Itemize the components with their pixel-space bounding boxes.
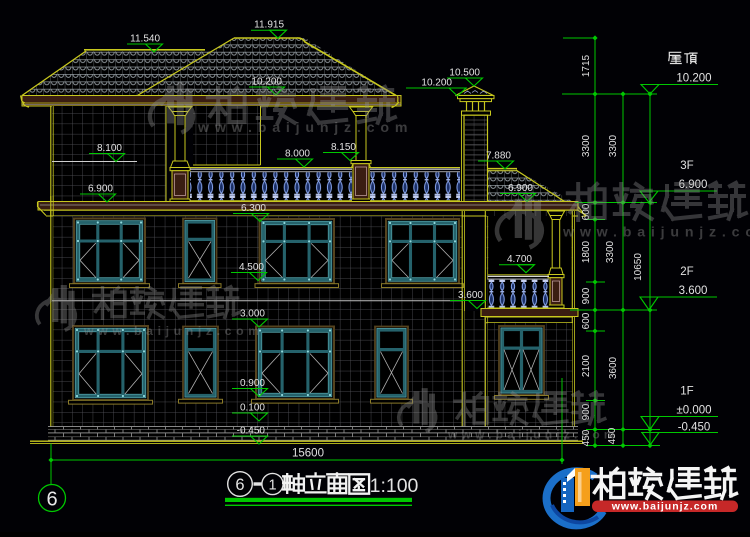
svg-text:www.baijunjz.com: www.baijunjz.com (197, 120, 413, 136)
svg-text:8.000: 8.000 (285, 149, 310, 160)
svg-text:15600: 15600 (292, 448, 324, 460)
svg-text:2F: 2F (680, 266, 693, 278)
svg-text:4.700: 4.700 (507, 254, 532, 265)
svg-text:0.900: 0.900 (240, 378, 265, 389)
svg-text:www.baijunjz.com: www.baijunjz.com (562, 225, 750, 241)
svg-text:7.880: 7.880 (486, 151, 511, 162)
svg-text:±0.000: ±0.000 (676, 405, 711, 417)
svg-text:1: 1 (268, 477, 276, 493)
svg-text:11.540: 11.540 (130, 34, 160, 45)
svg-text:www.baijunjz.com: www.baijunjz.com (611, 501, 719, 513)
svg-text:10650: 10650 (633, 253, 644, 281)
svg-text:1:100: 1:100 (370, 475, 419, 497)
svg-text:11.915: 11.915 (254, 20, 284, 31)
svg-text:-0.450: -0.450 (678, 422, 711, 434)
svg-text:1715: 1715 (581, 54, 592, 77)
svg-text:10.200: 10.200 (251, 77, 282, 88)
svg-text:6.300: 6.300 (241, 203, 266, 214)
svg-text:3F: 3F (680, 160, 693, 172)
svg-text:6.900: 6.900 (508, 183, 533, 194)
svg-text:4.500: 4.500 (239, 262, 264, 273)
svg-text:10.500: 10.500 (449, 68, 480, 79)
svg-text:3.600: 3.600 (458, 290, 483, 301)
svg-text:3.600: 3.600 (679, 285, 708, 297)
svg-text:8.150: 8.150 (331, 142, 356, 153)
svg-text:-0.450: -0.450 (237, 426, 266, 437)
svg-text:0.100: 0.100 (240, 403, 265, 414)
svg-text:3.000: 3.000 (240, 309, 265, 320)
svg-text:1F: 1F (680, 386, 693, 398)
svg-text:10.200: 10.200 (421, 78, 452, 89)
svg-text:3300: 3300 (605, 240, 616, 263)
svg-text:8.100: 8.100 (97, 143, 122, 154)
svg-text:6: 6 (46, 489, 57, 511)
svg-text:600: 600 (581, 312, 592, 329)
svg-text:www.baijunjz.com: www.baijunjz.com (83, 324, 264, 338)
svg-text:1800: 1800 (581, 240, 592, 263)
svg-text:3300: 3300 (608, 134, 619, 157)
svg-text:6: 6 (235, 476, 244, 494)
svg-text:3600: 3600 (608, 356, 619, 379)
svg-text:6.900: 6.900 (88, 184, 113, 195)
svg-text:10.200: 10.200 (676, 73, 711, 85)
svg-text:3300: 3300 (581, 134, 592, 157)
svg-text:www.baijunjz.com: www.baijunjz.com (447, 428, 619, 442)
svg-text:900: 900 (581, 287, 592, 304)
svg-text:2100: 2100 (581, 354, 592, 377)
